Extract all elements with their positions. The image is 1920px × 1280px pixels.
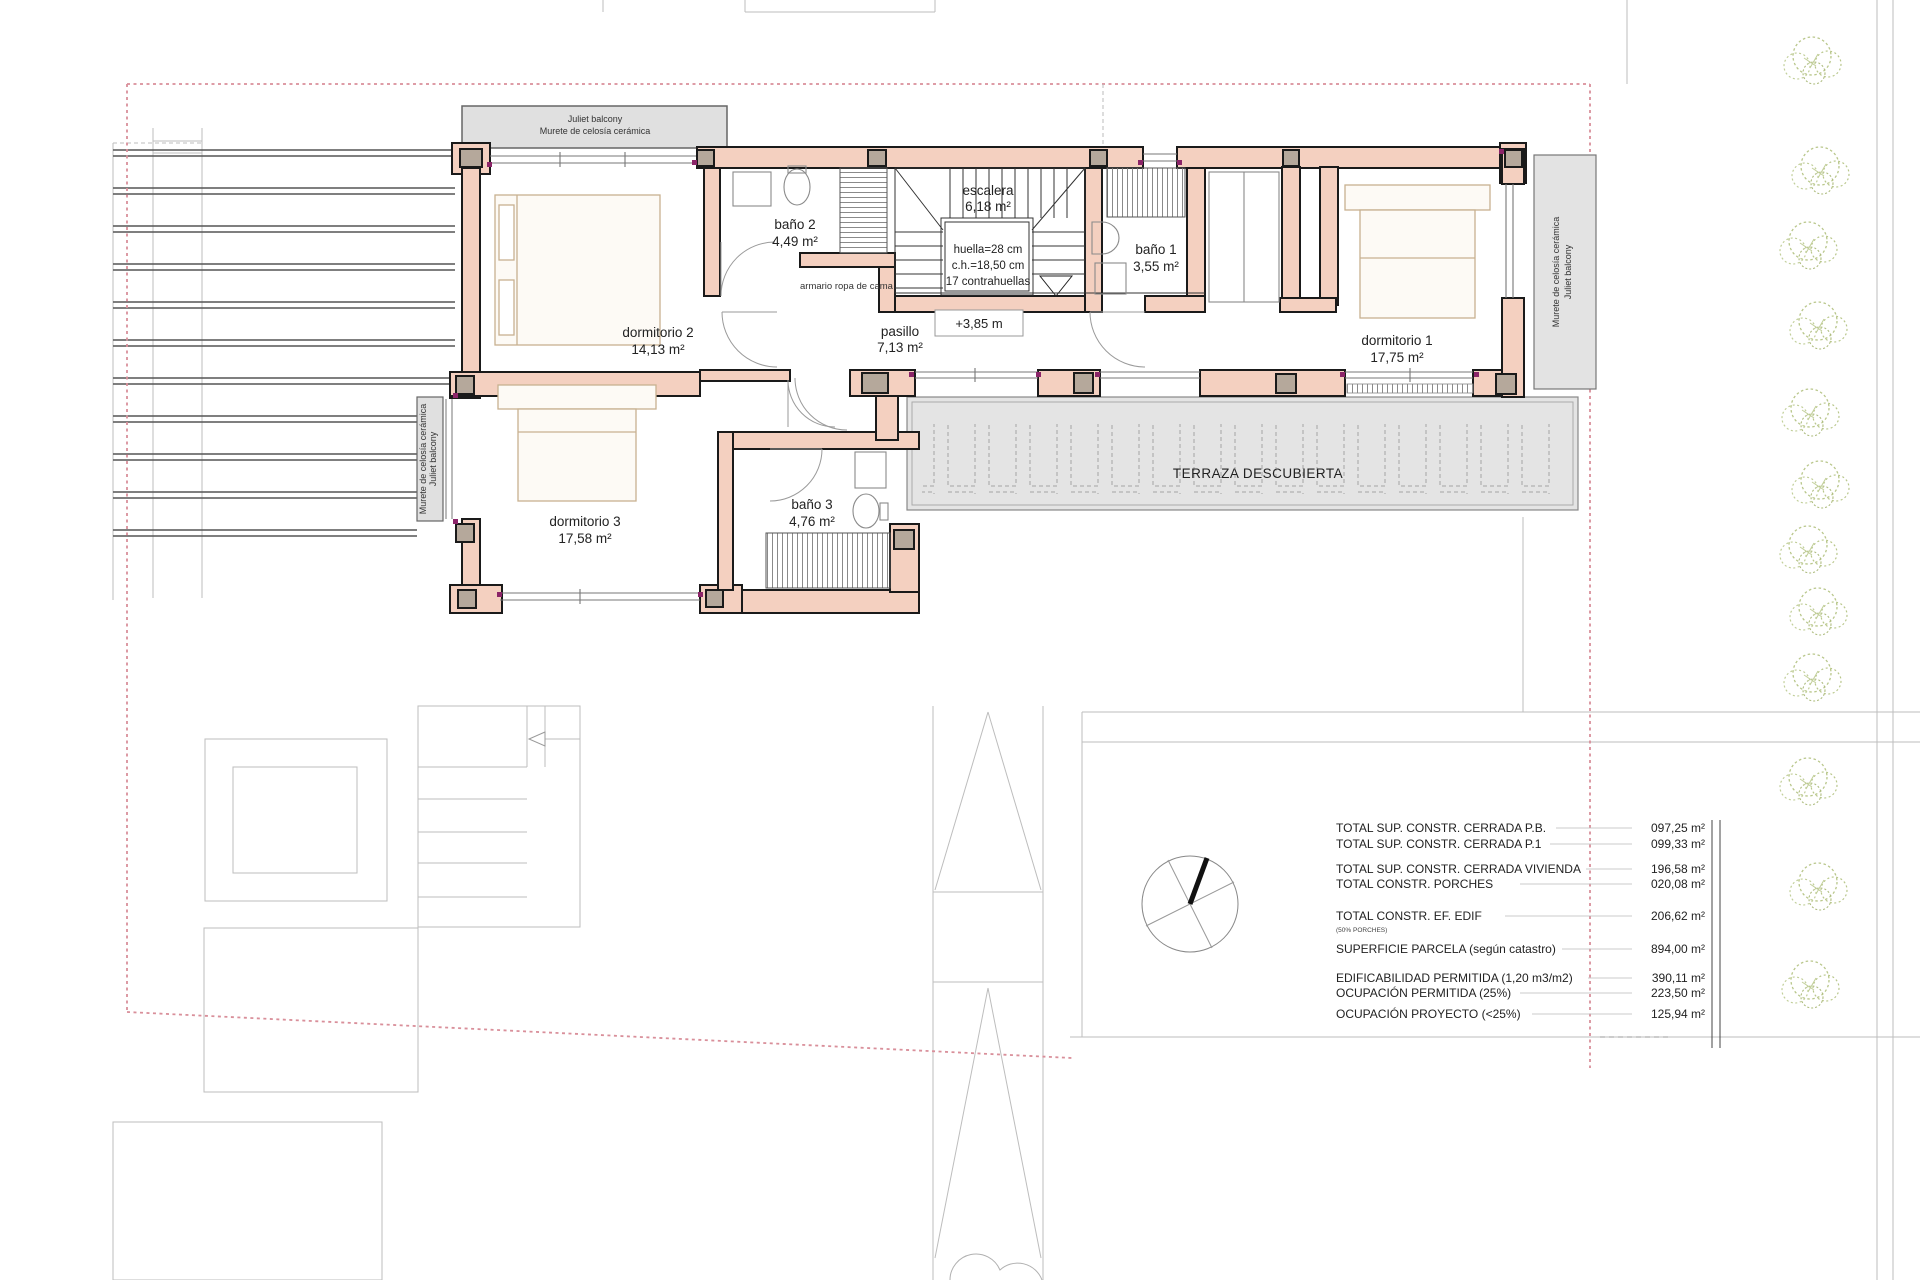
room-dormitorio2-name: dormitorio 2 xyxy=(622,325,693,340)
floor-plan-drawing: TERRAZA DESCUBIERTA Juliet balcony Muret… xyxy=(0,0,1920,1280)
stair-note-line1: huella=28 cm xyxy=(954,244,1023,256)
room-pasillo-name: pasillo xyxy=(881,324,919,339)
balcony-top-line2: Murete de celosía cerámica xyxy=(540,126,651,136)
table-row-label: EDIFICABILIDAD PERMITIDA (1,20 m3/m2) xyxy=(1336,971,1573,985)
room-dormitorio3-name: dormitorio 3 xyxy=(549,514,620,529)
shower-hatch xyxy=(766,533,890,588)
terrace: TERRAZA DESCUBIERTA xyxy=(907,397,1578,510)
north-compass xyxy=(1142,856,1238,952)
balcony-left-line1: Murete de celosía cerámica xyxy=(418,404,428,515)
table-row-value: 097,25 m² xyxy=(1651,821,1705,835)
table-row-label: TOTAL CONSTR. EF. EDIF xyxy=(1336,909,1482,923)
table-row-value: 020,08 m² xyxy=(1651,877,1705,891)
balcony-left-line2: Juliet balcony xyxy=(428,431,438,486)
room-escalera-name: escalera xyxy=(962,183,1014,198)
level-marker-value: +3,85 m xyxy=(955,316,1002,331)
room-bano2-name: baño 2 xyxy=(774,217,815,232)
room-bano3-area: 4,76 m² xyxy=(789,514,835,529)
muro-right-line2: Juliet balcony xyxy=(1563,244,1573,299)
table-row-value: 196,58 m² xyxy=(1651,862,1705,876)
table-row-label: TOTAL SUP. CONSTR. CERRADA VIVIENDA xyxy=(1336,862,1581,876)
room-bano1-name: baño 1 xyxy=(1135,242,1176,257)
room-bano1-area: 3,55 m² xyxy=(1133,259,1179,274)
summary-table: TOTAL SUP. CONSTR. CERRADA P.B. 097,25 m… xyxy=(1336,820,1720,1048)
terrace-label: TERRAZA DESCUBIERTA xyxy=(1173,466,1343,481)
table-row-label: OCUPACIÓN PROYECTO (<25%) xyxy=(1336,1006,1521,1021)
room-dormitorio1-area: 17,75 m² xyxy=(1370,350,1424,365)
ground-floor-background xyxy=(113,0,1920,1280)
trees xyxy=(1780,37,1849,1008)
celosia-wall-right: Murete de celosía cerámica Juliet balcon… xyxy=(1534,155,1596,389)
table-row-value: 223,50 m² xyxy=(1651,986,1705,1000)
wardrobe-hatch xyxy=(1107,168,1185,217)
closet-label: armario ropa de cama xyxy=(800,281,894,292)
table-border-line xyxy=(1712,820,1720,1048)
muro-right-line1: Murete de celosía cerámica xyxy=(1551,217,1561,328)
stair-note-line3: 17 contrahuellas xyxy=(946,276,1031,288)
table-row-value: 099,33 m² xyxy=(1651,837,1705,851)
table-row-note: (50% PORCHES) xyxy=(1336,927,1387,934)
table-row-value: 125,94 m² xyxy=(1651,1007,1705,1021)
table-row-label: TOTAL CONSTR. PORCHES xyxy=(1336,877,1493,891)
table-row-label: SUPERFICIE PARCELA (según catastro) xyxy=(1336,942,1556,956)
room-escalera-area: 6,18 m² xyxy=(965,199,1011,214)
table-row-value: 894,00 m² xyxy=(1651,942,1705,956)
room-bano2-area: 4,49 m² xyxy=(772,234,818,249)
table-row-value: 206,62 m² xyxy=(1651,909,1705,923)
floor-plan-page: TERRAZA DESCUBIERTA Juliet balcony Muret… xyxy=(0,0,1920,1280)
table-row-label: OCUPACIÓN PERMITIDA (25%) xyxy=(1336,985,1511,1000)
level-marker: +3,85 m xyxy=(935,310,1023,336)
room-dormitorio1-name: dormitorio 1 xyxy=(1361,333,1432,348)
table-row-value: 390,11 m² xyxy=(1652,971,1705,985)
stair-note-line2: c.h.=18,50 cm xyxy=(952,260,1025,272)
room-dormitorio2-area: 14,13 m² xyxy=(631,342,685,357)
juliet-balcony-left: Murete de celosía cerámica Juliet balcon… xyxy=(417,397,452,521)
pergola-beams xyxy=(113,150,455,536)
closet-hatch xyxy=(840,168,887,253)
table-row-label: TOTAL SUP. CONSTR. CERRADA P.B. xyxy=(1336,821,1546,835)
table-row-label: TOTAL SUP. CONSTR. CERRADA P.1 xyxy=(1336,837,1542,851)
room-dormitorio3-area: 17,58 m² xyxy=(558,531,612,546)
room-pasillo-area: 7,13 m² xyxy=(877,340,923,355)
balcony-top-line1: Juliet balcony xyxy=(568,114,623,124)
celosia-band xyxy=(1347,384,1473,393)
juliet-balcony-top: Juliet balcony Murete de celosía cerámic… xyxy=(462,106,727,148)
room-bano3-name: baño 3 xyxy=(791,497,832,512)
